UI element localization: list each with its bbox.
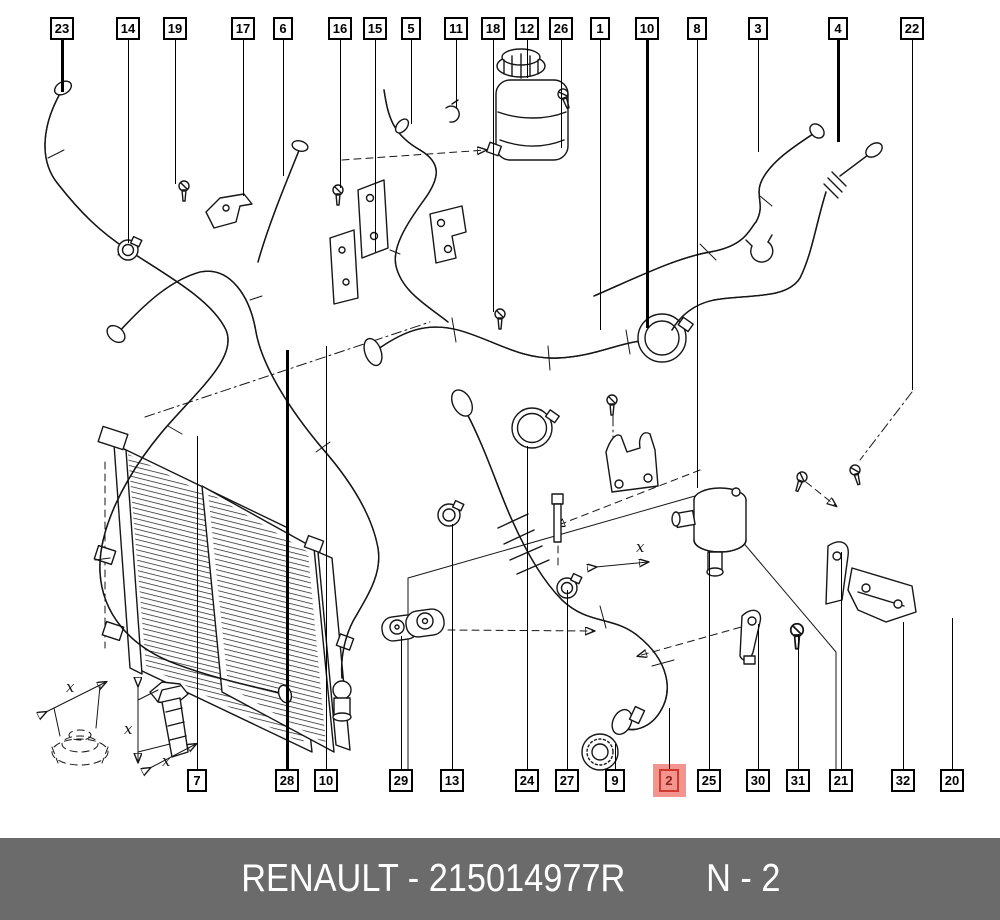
callout-bottom-28[interactable]: 28	[275, 769, 299, 792]
dim-label-bolt-d: x	[162, 752, 171, 770]
leader-line-top-8	[697, 39, 698, 488]
leader-line-top-18	[493, 39, 494, 312]
callout-bottom-25[interactable]: 25	[697, 769, 721, 792]
leader-line-bottom-2	[669, 708, 670, 770]
bracket-17	[206, 194, 252, 228]
hose-3	[594, 121, 827, 296]
callout-top-22[interactable]: 22	[900, 17, 924, 40]
leader-line-top-15	[375, 39, 376, 252]
screw-pump-bracket	[607, 395, 617, 415]
screw-16	[333, 185, 343, 205]
parts-drawing: x	[0, 0, 1000, 838]
mounting-stud	[552, 494, 648, 570]
callout-top-23[interactable]: 23	[50, 17, 74, 40]
gasket-29	[381, 607, 446, 642]
hose-6	[258, 139, 309, 262]
leader-line-bottom-21	[841, 552, 842, 770]
callout-top-17[interactable]: 17	[231, 17, 255, 40]
callout-top-1[interactable]: 1	[590, 17, 610, 40]
hose-4	[672, 140, 885, 330]
leader-line-bottom-28	[286, 350, 289, 770]
leader-line-top-1	[600, 39, 601, 330]
leader-line-top-12	[527, 39, 528, 78]
callout-top-11[interactable]: 11	[444, 17, 468, 40]
callout-top-4[interactable]: 4	[828, 17, 848, 40]
leader-line-top-19	[175, 39, 176, 184]
callout-top-5[interactable]: 5	[401, 17, 421, 40]
leader-line-top-14	[128, 39, 129, 243]
pump-bracket	[606, 433, 658, 492]
cap-nut-dim	[46, 682, 108, 765]
leader-line-top-5	[411, 39, 412, 124]
hose-1	[361, 318, 650, 370]
retaining-clip-11	[446, 100, 459, 122]
callout-bottom-20[interactable]: 20	[940, 769, 964, 792]
parts-catalog-page: x	[0, 0, 1000, 920]
callout-top-8[interactable]: 8	[687, 17, 707, 40]
leader-line-bottom-10	[326, 346, 327, 770]
footer-bar: RENAULT - 215014977R N - 2	[0, 838, 1000, 920]
callout-bottom-30[interactable]: 30	[746, 769, 770, 792]
bracket-32	[848, 568, 916, 622]
callout-bottom-24[interactable]: 24	[515, 769, 539, 792]
dim-label-stud: x	[636, 538, 645, 556]
leader-line-bottom-7	[197, 436, 198, 770]
callout-bottom-10[interactable]: 10	[314, 769, 338, 792]
leader-line-top-26	[561, 39, 562, 148]
callout-bottom-32[interactable]: 32	[891, 769, 915, 792]
leader-line-bottom-31	[798, 634, 799, 770]
screw-19	[179, 181, 189, 201]
radiator-lower-fitting	[333, 681, 351, 721]
dim-label-bolt-v: x	[124, 720, 133, 738]
leader-line-top-16	[340, 39, 341, 188]
clip-right	[849, 464, 864, 486]
callout-top-14[interactable]: 14	[116, 17, 140, 40]
callout-bottom-21[interactable]: 21	[829, 769, 853, 792]
leader-line-bottom-30	[758, 624, 759, 770]
hose-clamp-27	[557, 574, 582, 598]
callout-bottom-7[interactable]: 7	[187, 769, 207, 792]
footer-page-ref: N - 2	[706, 857, 780, 901]
leader-line-top-10	[646, 39, 649, 328]
leader-line-bottom-24	[527, 446, 528, 770]
footer-part-number: RENAULT - 215014977R	[241, 857, 625, 901]
hose-clamp-13	[438, 501, 464, 526]
leader-line-bottom-29	[401, 636, 402, 770]
screw-18	[495, 309, 505, 329]
leader-line-top-23	[61, 39, 64, 92]
callout-top-26[interactable]: 26	[549, 17, 573, 40]
leader-line-bottom-13	[452, 524, 453, 770]
leader-line-top-3	[758, 39, 759, 152]
leader-line-bottom-25	[709, 552, 710, 770]
bracket-15	[330, 180, 388, 304]
leader-line-bottom-32	[903, 622, 904, 770]
callout-top-18[interactable]: 18	[481, 17, 505, 40]
hose-5	[384, 90, 448, 322]
callout-bottom-13[interactable]: 13	[440, 769, 464, 792]
spring-clamp-9	[582, 734, 618, 770]
leader-line-top-11	[456, 39, 457, 108]
callout-bottom-9[interactable]: 9	[605, 769, 625, 792]
callout-top-10[interactable]: 10	[635, 17, 659, 40]
callout-bottom-29[interactable]: 29	[389, 769, 413, 792]
leader-line-top-22	[912, 39, 913, 390]
callout-top-3[interactable]: 3	[748, 17, 768, 40]
callout-top-6[interactable]: 6	[273, 17, 293, 40]
callout-bottom-2[interactable]: 2	[659, 769, 679, 792]
leader-line-bottom-20	[952, 618, 953, 770]
bracket-18	[430, 206, 466, 263]
leader-line-top-6	[283, 39, 284, 176]
callout-top-12[interactable]: 12	[515, 17, 539, 40]
callout-top-19[interactable]: 19	[163, 17, 187, 40]
hose-clamp-24	[512, 408, 559, 448]
spring-clip-right	[746, 235, 773, 262]
callout-top-16[interactable]: 16	[328, 17, 352, 40]
callout-bottom-27[interactable]: 27	[555, 769, 579, 792]
leader-line-bottom-27	[567, 590, 568, 770]
dim-label-capnut: x	[66, 678, 75, 696]
callout-bottom-31[interactable]: 31	[786, 769, 810, 792]
leader-line-bottom-9	[615, 744, 616, 770]
leader-line-top-17	[243, 39, 244, 196]
callout-top-15[interactable]: 15	[363, 17, 387, 40]
bracket-21	[826, 542, 848, 604]
leader-line-top-4	[837, 39, 840, 142]
